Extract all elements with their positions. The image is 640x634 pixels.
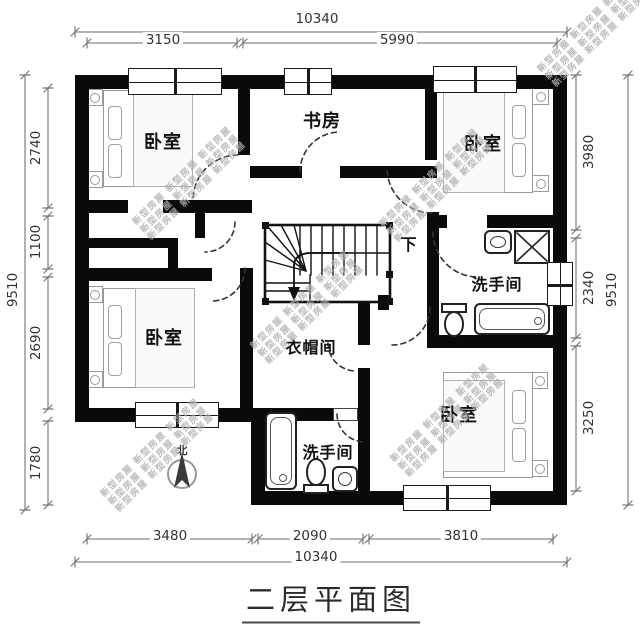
dim-bottom-seg-1: 3480	[150, 528, 190, 544]
dim-top-seg-2: 5990	[377, 32, 417, 48]
door-arc-bedroom-br	[392, 307, 430, 345]
dim-bottom-overall: 10340	[292, 549, 341, 565]
room-label-study: 书房	[303, 107, 341, 133]
dim-top-seg-1: 3150	[143, 32, 183, 48]
dim-left-seg-3: 2690	[28, 323, 44, 363]
dim-top-overall: 10340	[293, 11, 342, 27]
shower-x-icon	[517, 233, 547, 261]
room-label-bath-right: 洗手间	[471, 271, 522, 295]
dim-left-seg-4: 1780	[28, 443, 44, 483]
floor-plan: 卧室 书房 卧室 洗手间 卧室 衣帽间 洗手间 卧室 下 北 10340 315…	[0, 0, 640, 634]
door-arc-bath-bottom	[337, 414, 365, 442]
dim-right-overall: 9510	[604, 270, 620, 310]
door-arc-storage-1	[205, 222, 235, 252]
room-label-bedroom-bl: 卧室	[145, 324, 183, 350]
dim-right-seg-1: 3980	[581, 132, 597, 172]
dim-bottom-seg-2: 2090	[290, 528, 330, 544]
room-label-bath-bottom: 洗手间	[302, 439, 353, 463]
page-title: 二层平面图	[242, 577, 420, 624]
dim-right-seg-2: 2340	[581, 268, 597, 308]
room-label-bedroom-tl: 卧室	[144, 128, 182, 154]
dim-bottom-seg-3: 3810	[441, 528, 481, 544]
dim-right-seg-3: 3250	[581, 398, 597, 438]
dim-left-seg-1: 2740	[28, 128, 44, 168]
dim-left-seg-2: 1100	[28, 222, 44, 262]
door-arc-study	[300, 132, 340, 172]
door-arc-bedroom-bl	[212, 268, 245, 301]
dim-left-overall: 9510	[5, 270, 21, 310]
